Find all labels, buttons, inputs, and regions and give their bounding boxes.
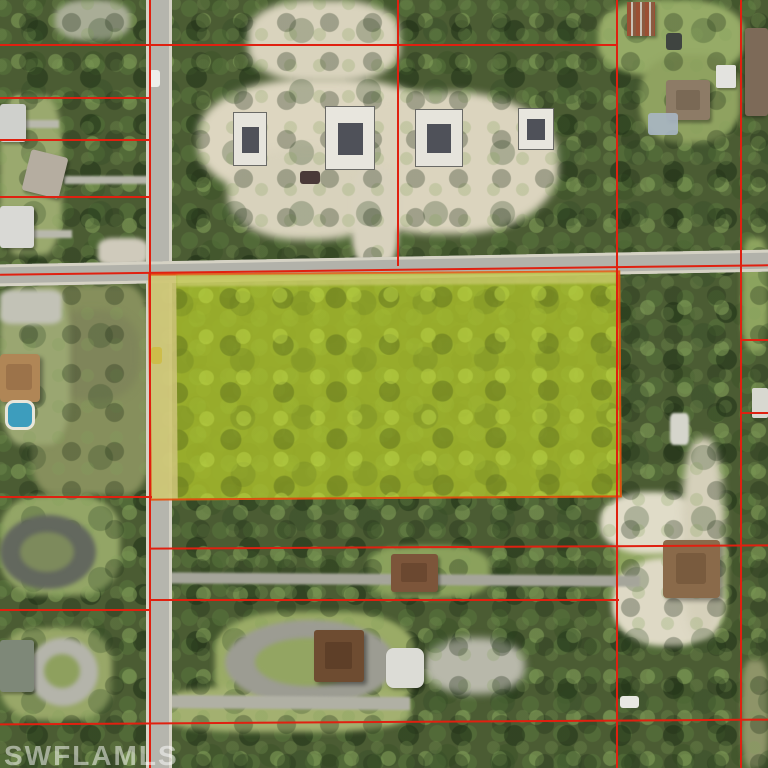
- lot-line-vertical-road-west: [149, 0, 151, 768]
- lot-line-h-609-left: [0, 609, 150, 611]
- lot-line-h-599: [149, 599, 619, 601]
- lot-line-h-parcel-south-west: [0, 496, 152, 498]
- lot-line-h-721: [0, 719, 768, 726]
- parcel-boundary-lines-layer: [0, 0, 768, 768]
- lot-line-h-97: [0, 97, 150, 99]
- mls-watermark: SWFLAMLS: [4, 740, 179, 768]
- lot-line-h-road: [0, 264, 768, 275]
- lot-line-h-44: [0, 44, 618, 46]
- lot-line-vertical-397: [397, 0, 399, 266]
- lot-line-vertical-740: [740, 0, 742, 768]
- lot-line-h-right-412: [740, 412, 768, 414]
- lot-line-h-139: [0, 139, 150, 141]
- lot-line-h-196: [0, 196, 150, 198]
- lot-line-vertical-616: [616, 0, 618, 768]
- aerial-map: SWFLAMLS: [0, 0, 768, 768]
- lot-line-h-right-339: [740, 339, 768, 341]
- lot-line-h-546: [149, 544, 768, 549]
